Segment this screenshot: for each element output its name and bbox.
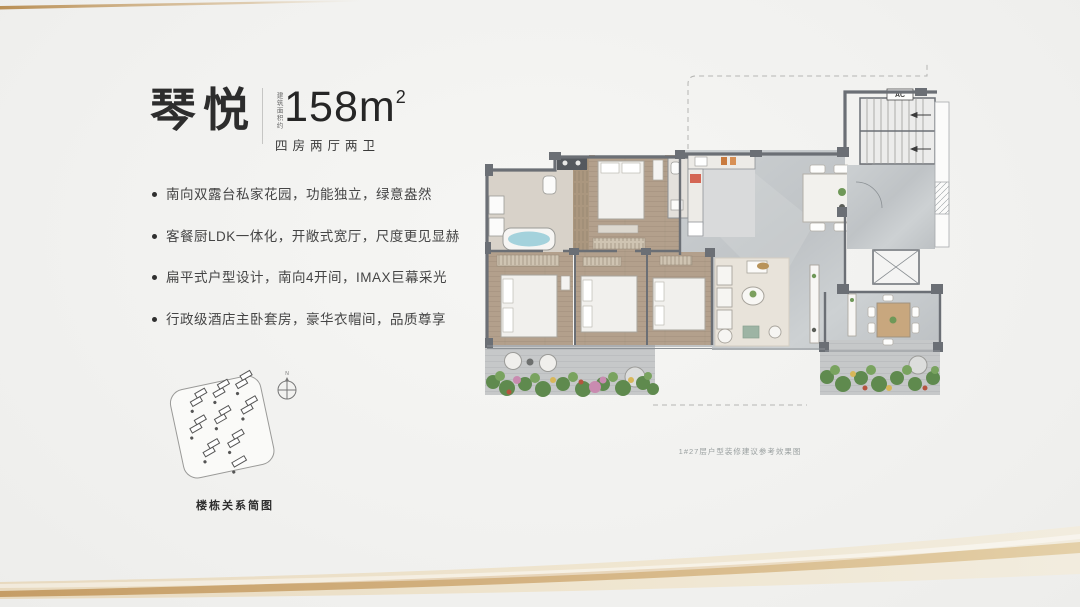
pillow xyxy=(655,282,664,301)
vanity-counter xyxy=(557,157,587,170)
bedroom-master xyxy=(487,252,573,345)
powder-room xyxy=(668,158,688,218)
bullet-icon xyxy=(152,317,157,322)
kitchen-sink xyxy=(695,157,707,166)
pillow xyxy=(503,308,513,332)
pillow xyxy=(655,306,664,325)
lounge-chair xyxy=(540,355,557,372)
bathtub-water xyxy=(508,232,550,247)
stove xyxy=(730,157,736,165)
tray-decor xyxy=(757,263,769,270)
table-plant xyxy=(890,317,897,324)
floor-plan: AC xyxy=(485,62,955,452)
feature-item: 行政级酒店主卧套房，豪华衣帽间，品质尊享 xyxy=(152,311,472,329)
svg-text:N: N xyxy=(285,371,289,377)
sink xyxy=(671,200,683,210)
bullet-icon xyxy=(152,192,157,197)
plan-title: 琴悦 xyxy=(150,86,256,137)
bench xyxy=(598,225,638,233)
sink xyxy=(489,218,504,236)
area-note: 建筑面积约 xyxy=(275,92,282,130)
site-diagram: N 楼栋关系简图 xyxy=(160,368,310,513)
duct-shaft xyxy=(935,182,949,214)
lounge-chair xyxy=(505,353,522,370)
gold-ribbon xyxy=(0,512,1080,607)
stove xyxy=(721,157,727,165)
side-table xyxy=(527,359,534,366)
toilet xyxy=(543,176,556,194)
master-bathroom xyxy=(487,170,573,252)
gold-top-line xyxy=(0,0,360,12)
kitchen xyxy=(688,154,755,237)
feature-item: 客餐厨LDK一体化，开敞式宽厅，尺度更见显赫 xyxy=(152,228,472,246)
sink xyxy=(489,196,504,214)
feature-list: 南向双露台私家花园，功能独立，绿意盎然 客餐厨LDK一体化，开敞式宽厅，尺度更见… xyxy=(152,186,472,352)
bedroom-third xyxy=(647,252,712,345)
shaft xyxy=(935,102,949,247)
nightstand xyxy=(653,160,663,180)
room-spec: 四房两厅两卫 xyxy=(275,135,406,154)
feature-item: 南向双露台私家花园，功能独立，绿意盎然 xyxy=(152,186,472,204)
side-chair xyxy=(769,326,781,338)
floorplan-caption: 1#27层户型装修建议参考效果图 xyxy=(620,446,860,457)
bedroom-top xyxy=(589,155,680,252)
area-value: 158m2 xyxy=(284,86,406,129)
area-superscript: 2 xyxy=(396,87,406,107)
fridge xyxy=(688,222,703,236)
bedroom-second xyxy=(575,252,647,345)
site-diagram-label: 楼栋关系简图 xyxy=(160,497,310,513)
feature-item: 扁平式户型设计，南向4开间，IMAX巨幕采光 xyxy=(152,269,472,287)
pillow xyxy=(583,280,592,301)
pillow xyxy=(503,279,513,303)
pouf xyxy=(743,326,759,338)
sofa xyxy=(717,266,732,329)
wardrobe xyxy=(660,256,692,265)
wardrobe xyxy=(497,255,559,266)
table-plant xyxy=(750,291,757,298)
pillow xyxy=(601,163,619,173)
plan-header: 琴悦 建筑面积约 158m2 四房两厅两卫 xyxy=(150,86,406,154)
wardrobe xyxy=(583,257,621,266)
table-plant xyxy=(838,188,846,196)
pillow xyxy=(583,306,592,327)
bullet-icon xyxy=(152,234,157,239)
site-diagram-graphic: N xyxy=(160,368,310,486)
bullet-icon xyxy=(152,275,157,280)
small-appliance xyxy=(690,174,701,183)
header-divider xyxy=(262,88,263,144)
stair-core: AC xyxy=(847,89,949,284)
pillow xyxy=(622,163,640,173)
armchair xyxy=(718,329,732,343)
toilet xyxy=(671,162,680,174)
nightstand xyxy=(561,276,570,290)
compass-icon: N xyxy=(278,371,296,399)
wardrobe xyxy=(593,238,645,249)
